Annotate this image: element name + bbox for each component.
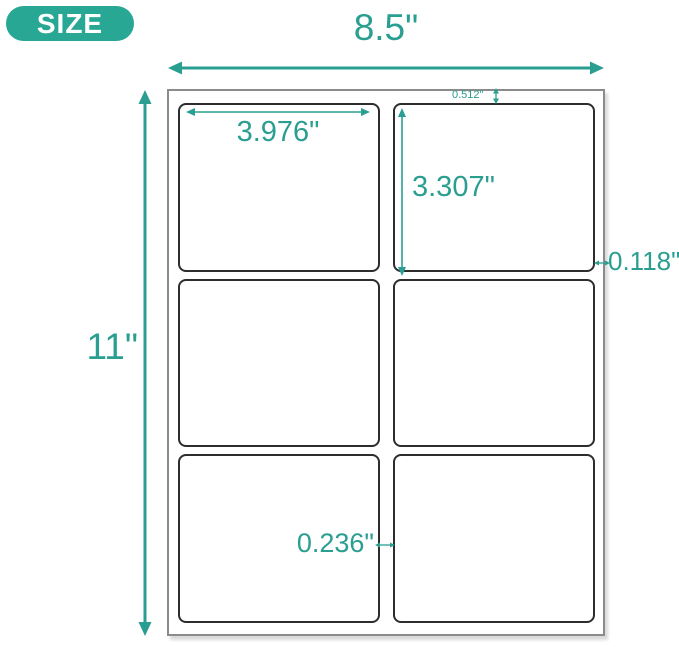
label-cell [393, 454, 595, 623]
label-size-diagram: SIZE 8.5" 11" 3.976" 3.307" 0.512" 0.118… [0, 0, 679, 647]
size-badge-label: SIZE [37, 8, 103, 40]
top-margin-value: 0.512" [452, 89, 483, 101]
column-gap-value: 0.236" [278, 529, 374, 559]
sheet-width-value: 8.5" [286, 8, 486, 49]
label-width-value: 3.976" [186, 117, 370, 149]
sheet-height-arrow-icon [139, 90, 152, 636]
label-height-value: 3.307" [412, 172, 495, 204]
label-sheet [167, 89, 605, 636]
size-badge: SIZE [6, 6, 134, 41]
label-cell [393, 279, 595, 448]
sheet-height-value: 11" [55, 327, 138, 368]
right-margin-value: 0.118" [608, 247, 679, 276]
label-cell [178, 279, 380, 448]
sheet-width-arrow-icon [168, 62, 604, 75]
